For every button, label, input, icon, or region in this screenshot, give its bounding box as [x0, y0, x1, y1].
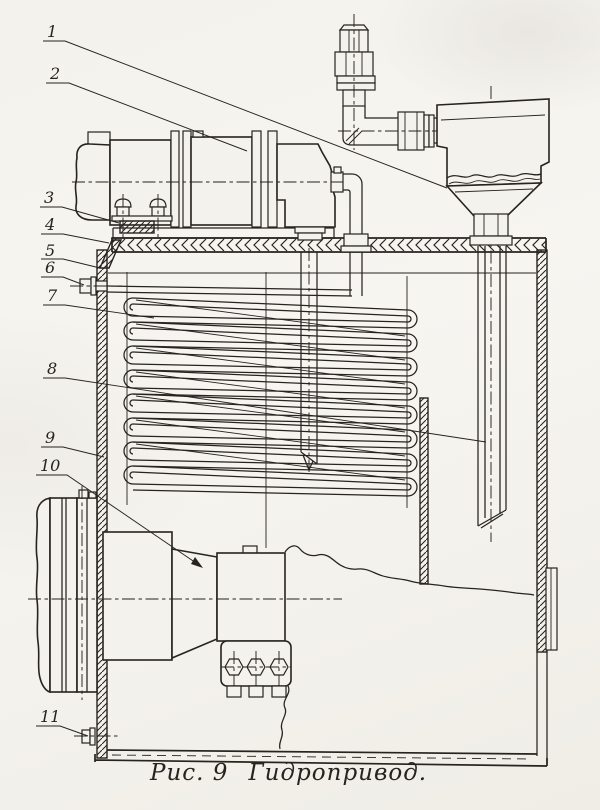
callout-11-number: 11 — [40, 707, 60, 726]
clamp-bar — [112, 216, 172, 221]
caption-title: Гидропривод. — [248, 760, 427, 786]
unit-body-right — [277, 144, 335, 227]
cutaway-break-lines — [280, 546, 534, 749]
clamp-block — [120, 221, 154, 233]
top-pump-unit — [72, 131, 371, 296]
bell-housing — [103, 532, 172, 660]
tank-left-wall — [97, 250, 107, 758]
callout-4-number: 4 — [44, 215, 55, 234]
unit-flange-b2 — [268, 131, 277, 227]
unit-flange-a1 — [171, 131, 179, 227]
callout-9: 9 — [41, 428, 104, 457]
unit-flange-b1 — [252, 131, 261, 227]
hydraulic-drive-drawing: 1 2 3 4 5 6 7 8 — [0, 0, 600, 810]
square-nut-1 — [227, 686, 241, 697]
outlet-pipe-nut — [344, 234, 368, 246]
callout-6-leader — [41, 277, 84, 285]
breather-locknut-1 — [337, 76, 375, 83]
suction-pipe-gland-upper — [295, 227, 325, 233]
drain-plug-head — [82, 730, 90, 743]
coupling-housing — [172, 549, 217, 658]
filler-pipe-walls — [478, 246, 506, 528]
outlet-pipe-flange — [341, 246, 371, 252]
drain-plug — [74, 728, 118, 745]
caption-figure-number: Рис. 9 — [150, 760, 228, 786]
funnel-body — [437, 99, 549, 186]
drawing-page: 1 2 3 4 5 6 7 8 — [0, 0, 600, 810]
funnel-lid-flange — [470, 236, 512, 245]
breather-locknut-2 — [337, 83, 375, 90]
reference-lines — [108, 272, 536, 548]
callout-1-number: 1 — [47, 22, 57, 41]
funnel-cone — [447, 183, 541, 216]
square-nut-3 — [272, 686, 286, 697]
callout-9-number: 9 — [45, 428, 55, 447]
callout-8-number: 8 — [47, 359, 57, 378]
unit-body-middle — [191, 137, 252, 225]
square-nut-2 — [249, 686, 263, 697]
baffle-plate — [420, 398, 428, 584]
unit-left-cap-step — [88, 132, 110, 145]
motor-left-cap — [36, 498, 50, 692]
callout-3-number: 3 — [44, 188, 54, 207]
breather-elbow — [343, 106, 398, 145]
tank-right-wall-lower — [537, 652, 547, 764]
callout-6: 6 — [41, 258, 84, 285]
figure-caption: Рис. 9 Гидропривод. — [150, 760, 470, 786]
callout-10-number: 10 — [40, 456, 60, 475]
outlet-gland-cap — [334, 167, 341, 173]
suction-pipe-gland-lower — [298, 233, 322, 240]
callout-11: 11 — [36, 707, 88, 736]
outlet-elbow-pipe — [343, 174, 362, 236]
callout-7-number: 7 — [47, 286, 58, 305]
pump-body — [217, 553, 285, 641]
break-line-horizontal — [285, 546, 534, 595]
filler-funnel — [437, 99, 549, 245]
callout-11-leader — [36, 726, 88, 736]
callout-6-number: 6 — [45, 258, 55, 277]
motor-body — [50, 498, 77, 692]
coil-left-bends — [124, 298, 133, 484]
side-bracket — [546, 568, 557, 650]
unit-flange-a2 — [183, 131, 191, 227]
funnel-hex-nut — [474, 214, 508, 236]
drive-motor-assembly — [28, 486, 342, 700]
drain-plug-washer — [90, 728, 95, 745]
tank-bottom-hatch-dashes — [112, 755, 532, 759]
callout-2-number: 2 — [49, 64, 60, 83]
flange-top-bolt — [79, 490, 88, 498]
coil-entry-tube — [107, 286, 352, 296]
coil-right-bends — [408, 310, 417, 496]
breather-fitting — [335, 14, 446, 150]
